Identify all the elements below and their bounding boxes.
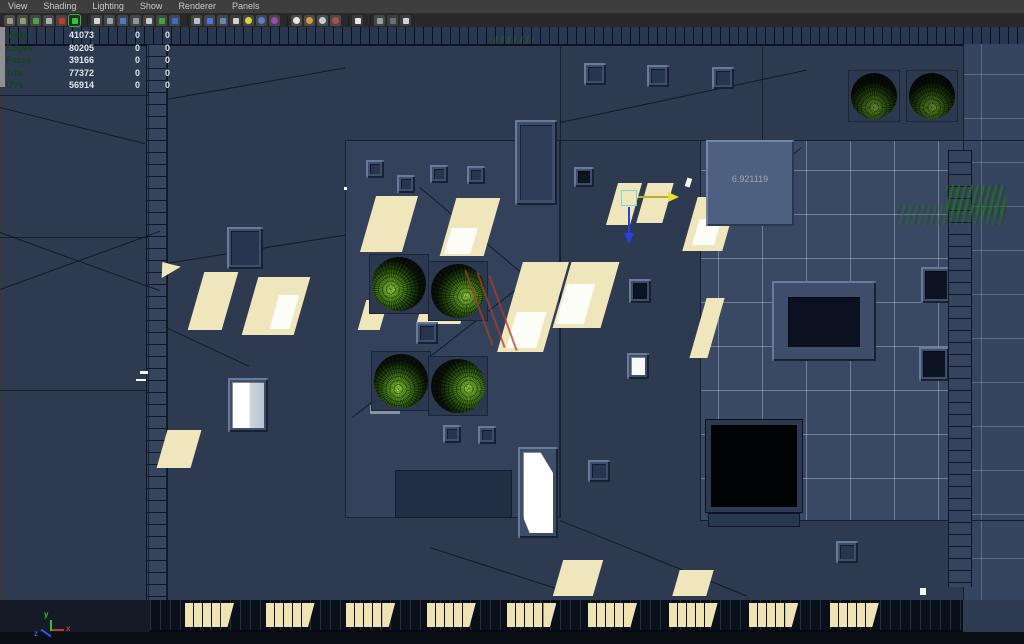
hud-value: 0 [140, 29, 170, 42]
window-pane [436, 603, 444, 627]
roof-vent [629, 279, 651, 303]
lighting-all-icon[interactable] [243, 15, 254, 26]
light-highlight [444, 228, 477, 254]
maya-viewport-window: ViewShadingLightingShowRendererPanels [0, 0, 1024, 644]
window-pane-slanted [866, 603, 879, 627]
window-pane [588, 603, 596, 627]
hud-value: 0 [140, 54, 170, 67]
bottom-edge [0, 632, 1024, 644]
hud-text-icon-glyph [172, 18, 178, 24]
select-cursor-icon[interactable] [352, 15, 363, 26]
hud-value: 0 [94, 67, 140, 80]
roof-opening-lip [708, 513, 800, 527]
gamma-icon[interactable] [330, 15, 341, 26]
tumble-tool-icon-glyph [7, 18, 13, 24]
isolate-off-icon[interactable] [387, 15, 398, 26]
window-pane [293, 603, 301, 627]
wireframe-line [430, 547, 565, 592]
roof-vent [836, 541, 858, 563]
window-group [669, 603, 719, 627]
wireframe-mode-icon[interactable] [191, 15, 202, 26]
tree-dome [431, 359, 485, 413]
gate-mask-icon-glyph [120, 18, 126, 24]
window-pane [266, 603, 274, 627]
wireframe-line [148, 44, 149, 600]
light-highlight [556, 284, 595, 324]
occlusion-icon-glyph [271, 17, 278, 24]
window-pane [767, 603, 775, 627]
axis-z-label: z [34, 629, 38, 638]
highlight-speck [344, 187, 347, 190]
right-edge-terrace [963, 44, 1024, 600]
toolbar-separator [183, 15, 188, 26]
window-pane-slanted [543, 603, 556, 627]
axis-x-label: x [66, 624, 70, 633]
hud-value: 80205 [46, 42, 94, 55]
wireframe-mode-icon-glyph [194, 18, 200, 24]
window-pane [427, 603, 435, 627]
lit-roof-box [228, 378, 268, 432]
hud-row-verts: Verts4107300 [6, 29, 178, 42]
exposure-icon[interactable] [317, 15, 328, 26]
track-tool-icon[interactable] [17, 15, 28, 26]
hud-label: Verts [6, 29, 46, 42]
window-pane [445, 603, 453, 627]
gate-mask-icon[interactable] [117, 15, 128, 26]
xray-joints-icon-glyph [306, 17, 313, 24]
window-pane [839, 603, 847, 627]
hud-label: Tris [6, 67, 46, 80]
xray-icon[interactable] [291, 15, 302, 26]
hud-value: 39166 [46, 54, 94, 67]
highlight-speck [920, 588, 926, 595]
window-pane [669, 603, 677, 627]
window-group [266, 603, 316, 627]
hud-row-edges: Edges8020500 [6, 42, 178, 55]
roof-vent [478, 426, 496, 444]
window-pane-slanted [221, 603, 234, 627]
light-patch [242, 277, 311, 335]
hud-label: Faces [6, 54, 46, 67]
window-group [588, 603, 638, 627]
track-tool-icon-glyph [20, 18, 26, 24]
window-group [507, 603, 557, 627]
safe-action-icon[interactable] [143, 15, 154, 26]
active-tool-icon-glyph [72, 18, 78, 24]
roof-vent [366, 160, 384, 178]
hud-value: 0 [94, 79, 140, 92]
window-pane [687, 603, 695, 627]
isolate-select-icon-glyph [377, 18, 383, 24]
poly-count-hud: Verts4107300Edges8020500Faces3916600Tris… [6, 29, 178, 92]
hud-label: UVs [6, 79, 46, 92]
window-pane [346, 603, 354, 627]
gamma-icon-glyph [332, 17, 339, 24]
film-gate-icon[interactable] [91, 15, 102, 26]
window-pane [284, 603, 292, 627]
lighting-all-icon-glyph [245, 17, 252, 24]
panel-toolbar [0, 14, 1024, 27]
window-pane [696, 603, 704, 627]
window-pane [678, 603, 686, 627]
xray-icon-glyph [293, 17, 300, 24]
safe-action-icon-glyph [146, 18, 152, 24]
window-pane [203, 603, 211, 627]
toolbar-separator [283, 15, 288, 26]
panel-edge-strip-lower [0, 88, 5, 632]
window-group [185, 603, 235, 627]
active-tool-icon[interactable] [69, 15, 80, 26]
menu-lighting[interactable]: Lighting [84, 0, 132, 13]
view-axis-gizmo: y x z [36, 613, 76, 641]
selected-object-wireframe [898, 205, 1006, 225]
roof-hatch [227, 227, 263, 269]
roof-vent [467, 166, 485, 184]
menu-renderer[interactable]: Renderer [170, 0, 224, 13]
marker-icon[interactable] [56, 15, 67, 26]
window-pane [749, 603, 757, 627]
window-pane-slanted [624, 603, 637, 627]
move-manipulator-z-shaft[interactable] [628, 207, 630, 233]
textured-mode-icon-glyph [220, 18, 226, 24]
tree-planter [369, 254, 429, 314]
move-manipulator-x-arrow[interactable] [668, 192, 679, 202]
window-pane [364, 603, 372, 627]
roof-opening [711, 425, 797, 507]
wireframe-line [0, 390, 148, 391]
window-pane [758, 603, 766, 627]
occlusion-icon[interactable] [269, 15, 280, 26]
menu-show[interactable]: Show [132, 0, 171, 13]
wireframe-line [0, 107, 146, 144]
wireframe-line [345, 140, 1024, 141]
film-gate-icon-glyph [94, 18, 100, 24]
hud-value: 0 [94, 54, 140, 67]
window-group [346, 603, 396, 627]
resolution-gate-icon-glyph [107, 18, 113, 24]
skylight [515, 120, 557, 205]
menu-panels[interactable]: Panels [224, 0, 268, 13]
tree-planter [906, 70, 958, 122]
light-patch [672, 570, 713, 596]
roof-vent [574, 167, 594, 187]
hud-text-icon[interactable] [169, 15, 180, 26]
image-plane-icon-glyph [33, 18, 39, 24]
window-pane [355, 603, 363, 627]
shadows-icon[interactable] [256, 15, 267, 26]
toolbar-separator [344, 15, 349, 26]
tree-planter [428, 356, 488, 416]
tree-dome [909, 73, 955, 119]
shaded-mode-icon-glyph [207, 18, 213, 24]
window-group [427, 603, 477, 627]
mesh-display-icon-glyph [46, 18, 52, 24]
share-view-icon[interactable] [400, 15, 411, 26]
roof-vent [921, 267, 951, 303]
wireframe-line [0, 237, 148, 238]
skylight-lit [518, 447, 558, 538]
window-pane-slanted [463, 603, 476, 627]
window-pane [185, 603, 193, 627]
field-chart-icon[interactable] [130, 15, 141, 26]
panel-edge-strip [0, 27, 5, 87]
select-cursor-icon-glyph [355, 18, 361, 24]
window-pane [275, 603, 283, 627]
hud-value: 77372 [46, 67, 94, 80]
roof-vent [416, 322, 438, 344]
toolbar-separator [366, 15, 371, 26]
roof-vent [584, 63, 606, 85]
viewport-top-view[interactable]: 6.921119 [0, 27, 1024, 644]
hud-value: 0 [140, 42, 170, 55]
hud-value: 0 [140, 79, 170, 92]
window-pane [597, 603, 605, 627]
xray-joints-icon[interactable] [304, 15, 315, 26]
move-manipulator-x-shaft[interactable] [638, 196, 668, 198]
hud-row-faces: Faces3916600 [6, 54, 178, 67]
window-pane [516, 603, 524, 627]
hud-row-uvs: UVs5691400 [6, 79, 178, 92]
highlight-speck [140, 371, 148, 374]
wireframe-line [762, 44, 763, 140]
window-pane [606, 603, 614, 627]
window-pane [534, 603, 542, 627]
window-band [150, 600, 963, 632]
share-view-icon-glyph [403, 18, 409, 24]
panel-menu-bar: ViewShadingLightingShowRendererPanels [0, 0, 1024, 14]
roof-vent [443, 425, 461, 443]
window-group [830, 603, 880, 627]
light-highlight [269, 295, 299, 329]
menu-shading[interactable]: Shading [35, 0, 84, 13]
window-pane-slanted [785, 603, 798, 627]
window-pane-slanted [302, 603, 315, 627]
window-pane [212, 603, 220, 627]
isolate-select-icon[interactable] [374, 15, 385, 26]
hud-value: 0 [94, 29, 140, 42]
window-pane [848, 603, 856, 627]
menu-view[interactable]: View [0, 0, 35, 13]
window-pane-slanted [705, 603, 718, 627]
exposure-icon-glyph [319, 17, 326, 24]
window-pane [776, 603, 784, 627]
safe-title-icon-glyph [159, 18, 165, 24]
roof-vent [588, 460, 610, 482]
selected-object-wireframe [490, 36, 534, 43]
hud-row-tris: Tris7737200 [6, 67, 178, 80]
textured-mode-icon[interactable] [217, 15, 228, 26]
field-chart-icon-glyph [133, 18, 139, 24]
move-manipulator-z-arrow[interactable] [624, 233, 634, 244]
window-pane-slanted [382, 603, 395, 627]
shadows-icon-glyph [258, 17, 265, 24]
shaded-mode-icon[interactable] [204, 15, 215, 26]
marker-icon-glyph [59, 18, 65, 24]
wireframe-line [0, 232, 160, 291]
window-pane [194, 603, 202, 627]
measured-panel: 6.921119 [706, 140, 794, 226]
wireframe-line [166, 327, 250, 367]
light-patch [636, 183, 673, 223]
safe-title-icon[interactable] [156, 15, 167, 26]
light-patch [188, 272, 239, 330]
move-manipulator-center[interactable] [621, 190, 637, 206]
window-pane [454, 603, 462, 627]
roof-vent [397, 175, 415, 193]
tree-planter [371, 351, 431, 411]
toolbar-separator [83, 15, 88, 26]
tree-dome [851, 73, 897, 119]
hud-value: 41073 [46, 29, 94, 42]
hud-value: 56914 [46, 79, 94, 92]
axis-y-label: y [44, 610, 48, 619]
roof-vent [430, 165, 448, 183]
tumble-tool-icon[interactable] [4, 15, 15, 26]
window-pane [507, 603, 515, 627]
roof-vent [712, 67, 734, 89]
highlight-speck [136, 379, 146, 381]
hud-label: Edges [6, 42, 46, 55]
use-default-material-icon-glyph [233, 18, 239, 24]
hud-value: 0 [140, 67, 170, 80]
hud-value: 0 [94, 42, 140, 55]
large-roof-vent [772, 281, 876, 361]
window-pane [830, 603, 838, 627]
roof-vent-lit [627, 353, 649, 379]
central-roof-inset [395, 470, 512, 518]
left-facade-ladder [146, 44, 168, 600]
window-group [749, 603, 799, 627]
tree-dome [374, 354, 428, 408]
window-pane [525, 603, 533, 627]
isolate-off-icon-glyph [390, 18, 396, 24]
resolution-gate-icon[interactable] [104, 15, 115, 26]
wireframe-line [166, 44, 167, 600]
window-pane [373, 603, 381, 627]
mesh-display-icon[interactable] [43, 15, 54, 26]
wireframe-line [166, 67, 345, 100]
window-pane [857, 603, 865, 627]
light-patch [553, 560, 603, 596]
distance-measurement-label: 6.921119 [706, 174, 794, 184]
image-plane-icon[interactable] [30, 15, 41, 26]
wireframe-line [0, 95, 148, 96]
axis-x-line [52, 629, 64, 631]
tree-planter [848, 70, 900, 122]
use-default-material-icon[interactable] [230, 15, 241, 26]
tree-dome [372, 257, 426, 311]
roof-vent [647, 65, 669, 87]
highlight-speck [685, 177, 693, 187]
roof-vent [919, 347, 949, 381]
window-pane [615, 603, 623, 627]
